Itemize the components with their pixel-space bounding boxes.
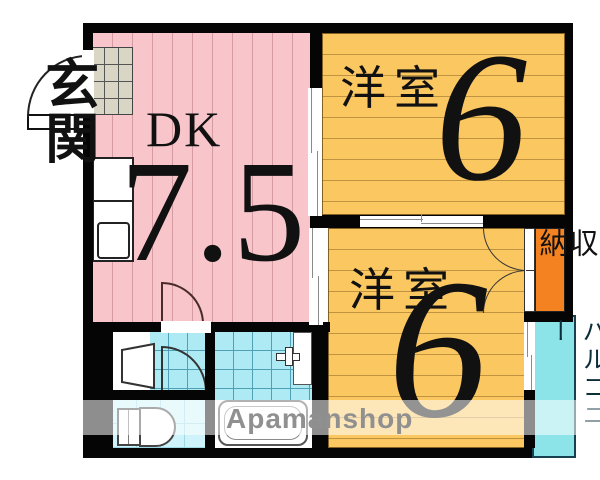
balcony-label: バルコニー [541, 318, 600, 456]
hall-doorway [161, 321, 211, 333]
sliding-door-dk-top-room [308, 88, 322, 216]
faucet-icon-stem [285, 347, 293, 366]
wall-left-block [83, 325, 113, 458]
dk-size: 7.5 [120, 140, 307, 285]
closet-label: 収納 [536, 228, 596, 312]
entrance-label: 玄関 [38, 56, 95, 164]
wall-wash-toilet [113, 390, 205, 400]
wall-left-upper [83, 23, 93, 53]
wall-wash-bath [205, 332, 215, 458]
bathroom-door-leaf [161, 346, 163, 390]
balcony-window [524, 322, 535, 390]
washbasin [120, 342, 156, 390]
floor-plan: 玄関 DK 7.5 洋室 6 洋室 6 収納 バルコニー Apamanshop [0, 0, 600, 480]
closet-door-face [524, 228, 535, 312]
bedroom-top-size: 6 [435, 25, 528, 210]
watermark-text: Apamanshop [226, 403, 413, 435]
sliding-door-dk-bottom-room [309, 228, 323, 325]
bedroom-top-label: 洋室 [340, 52, 448, 118]
wall-bath-bedroom [312, 322, 328, 458]
